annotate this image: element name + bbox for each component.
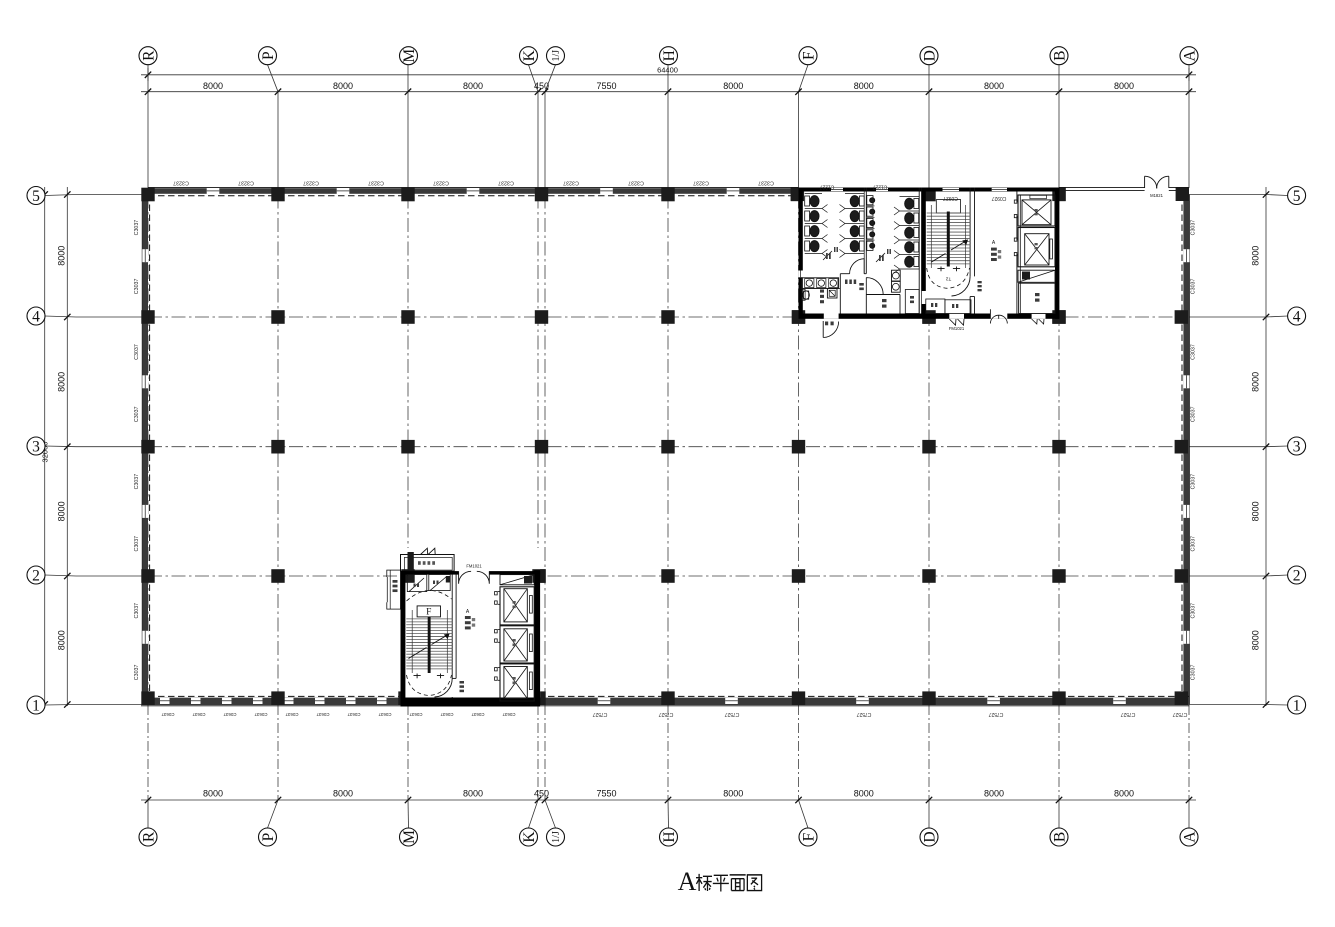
svg-text:FM1021: FM1021 [466,564,482,569]
svg-text:C3237: C3237 [173,180,189,186]
svg-text:7550: 7550 [596,81,616,91]
svg-text:C7527: C7527 [658,711,673,717]
svg-text:64400: 64400 [657,65,678,74]
svg-text:1/J: 1/J [551,50,562,62]
svg-text:C7527: C7527 [1172,711,1187,717]
svg-text:C3037: C3037 [1191,344,1197,360]
svg-text:C0637: C0637 [223,712,236,717]
svg-text:C3037: C3037 [134,665,140,681]
svg-text:K: K [521,49,538,61]
svg-text:8000: 8000 [1251,630,1261,650]
svg-text:C0637: C0637 [316,712,329,717]
svg-text:8000: 8000 [1251,246,1261,266]
svg-text:8000: 8000 [984,81,1004,91]
svg-text:T2: T2 [945,277,951,282]
svg-text:8000: 8000 [1251,372,1261,392]
svg-text:R: R [140,831,157,842]
svg-text:C3037: C3037 [1191,536,1197,552]
svg-text:F: F [800,51,817,60]
svg-text:D: D [921,831,938,842]
svg-text:450: 450 [534,788,549,798]
svg-text:M: M [401,830,418,844]
svg-text:F: F [426,607,431,617]
svg-text:C3037: C3037 [134,220,140,236]
svg-text:8000: 8000 [723,788,743,798]
svg-text:C3037: C3037 [134,344,140,360]
svg-text:8000: 8000 [56,372,66,392]
svg-text:H: H [661,50,678,61]
svg-text:8000: 8000 [854,788,874,798]
svg-text:C3237: C3237 [368,180,384,186]
svg-text:C7527: C7527 [724,711,739,717]
svg-text:C0637: C0637 [161,712,174,717]
svg-text:M1821: M1821 [1150,193,1163,198]
svg-text:C7527: C7527 [1120,711,1135,717]
svg-text:2: 2 [32,567,40,584]
svg-text:H: H [661,831,678,842]
svg-text:8000: 8000 [203,81,223,91]
svg-text:8000: 8000 [463,81,483,91]
svg-text:1/J: 1/J [551,831,562,843]
svg-text:C3237: C3237 [628,180,644,186]
svg-text:C3237: C3237 [498,180,514,186]
svg-text:C3037: C3037 [134,536,140,552]
svg-text:C7527: C7527 [592,711,607,717]
svg-text:C3237: C3237 [758,180,774,186]
svg-text:C0637: C0637 [285,712,298,717]
svg-text:C3237: C3237 [693,180,709,186]
svg-text:C0637: C0637 [347,712,360,717]
svg-text:C3037: C3037 [1191,279,1197,295]
svg-text:R: R [140,50,157,61]
svg-text:1: 1 [1293,697,1301,714]
svg-text:8000: 8000 [723,81,743,91]
svg-text:4: 4 [32,308,40,325]
svg-text:B: B [1051,51,1068,61]
svg-text:A: A [678,867,697,896]
svg-text:4: 4 [1293,308,1301,325]
svg-text:3: 3 [32,438,40,455]
svg-text:8000: 8000 [333,788,353,798]
svg-text:8000: 8000 [56,630,66,650]
svg-text:8000: 8000 [1251,501,1261,521]
svg-text:8000: 8000 [203,788,223,798]
svg-text:C3037: C3037 [134,406,140,422]
svg-text:3: 3 [1293,438,1301,455]
svg-text:C3237: C3237 [238,180,254,186]
svg-text:C0637: C0637 [471,712,484,717]
svg-text:C0637: C0637 [440,712,453,717]
svg-text:C3037: C3037 [134,603,140,619]
svg-text:5: 5 [32,188,40,205]
svg-text:8000: 8000 [984,788,1004,798]
svg-text:8000: 8000 [333,81,353,91]
svg-text:C0637: C0637 [254,712,267,717]
svg-text:C1227: C1227 [819,183,834,189]
svg-text:2: 2 [1293,567,1301,584]
svg-text:1: 1 [32,697,40,714]
svg-text:C7527: C7527 [988,711,1003,717]
svg-text:5: 5 [1293,188,1301,205]
svg-text:B: B [1051,832,1068,842]
svg-text:8000: 8000 [56,246,66,266]
svg-text:P: P [260,833,277,842]
svg-text:8000: 8000 [56,501,66,521]
svg-text:C3037: C3037 [134,474,140,490]
svg-text:C3037: C3037 [1191,406,1197,422]
svg-text:C3037: C3037 [1191,603,1197,619]
svg-text:F: F [800,832,817,841]
svg-text:P: P [260,51,277,60]
svg-text:K: K [521,831,538,843]
svg-text:450: 450 [534,81,549,91]
svg-text:C3037: C3037 [1191,665,1197,681]
svg-text:C0637: C0637 [378,712,391,717]
svg-text:C0637: C0637 [409,712,422,717]
svg-text:C0927: C0927 [991,195,1006,201]
svg-text:7550: 7550 [596,788,616,798]
svg-text:A: A [1181,49,1198,61]
svg-text:C7527: C7527 [856,711,871,717]
svg-text:8000: 8000 [854,81,874,91]
svg-text:8000: 8000 [1114,81,1134,91]
svg-text:C3237: C3237 [433,180,449,186]
svg-text:M: M [401,49,418,63]
svg-text:C3237: C3237 [303,180,319,186]
svg-text:C0637: C0637 [502,712,515,717]
svg-text:C3037: C3037 [1191,474,1197,490]
svg-text:8000: 8000 [1114,788,1134,798]
svg-text:C3037: C3037 [134,279,140,295]
svg-text:C3037: C3037 [1191,220,1197,236]
svg-text:C1227: C1227 [872,183,887,189]
svg-text:D: D [921,50,938,61]
svg-text:C0637: C0637 [192,712,205,717]
svg-text:FM1021: FM1021 [949,326,965,331]
svg-text:8000: 8000 [463,788,483,798]
svg-text:C3237: C3237 [563,180,579,186]
svg-text:A: A [1181,831,1198,843]
